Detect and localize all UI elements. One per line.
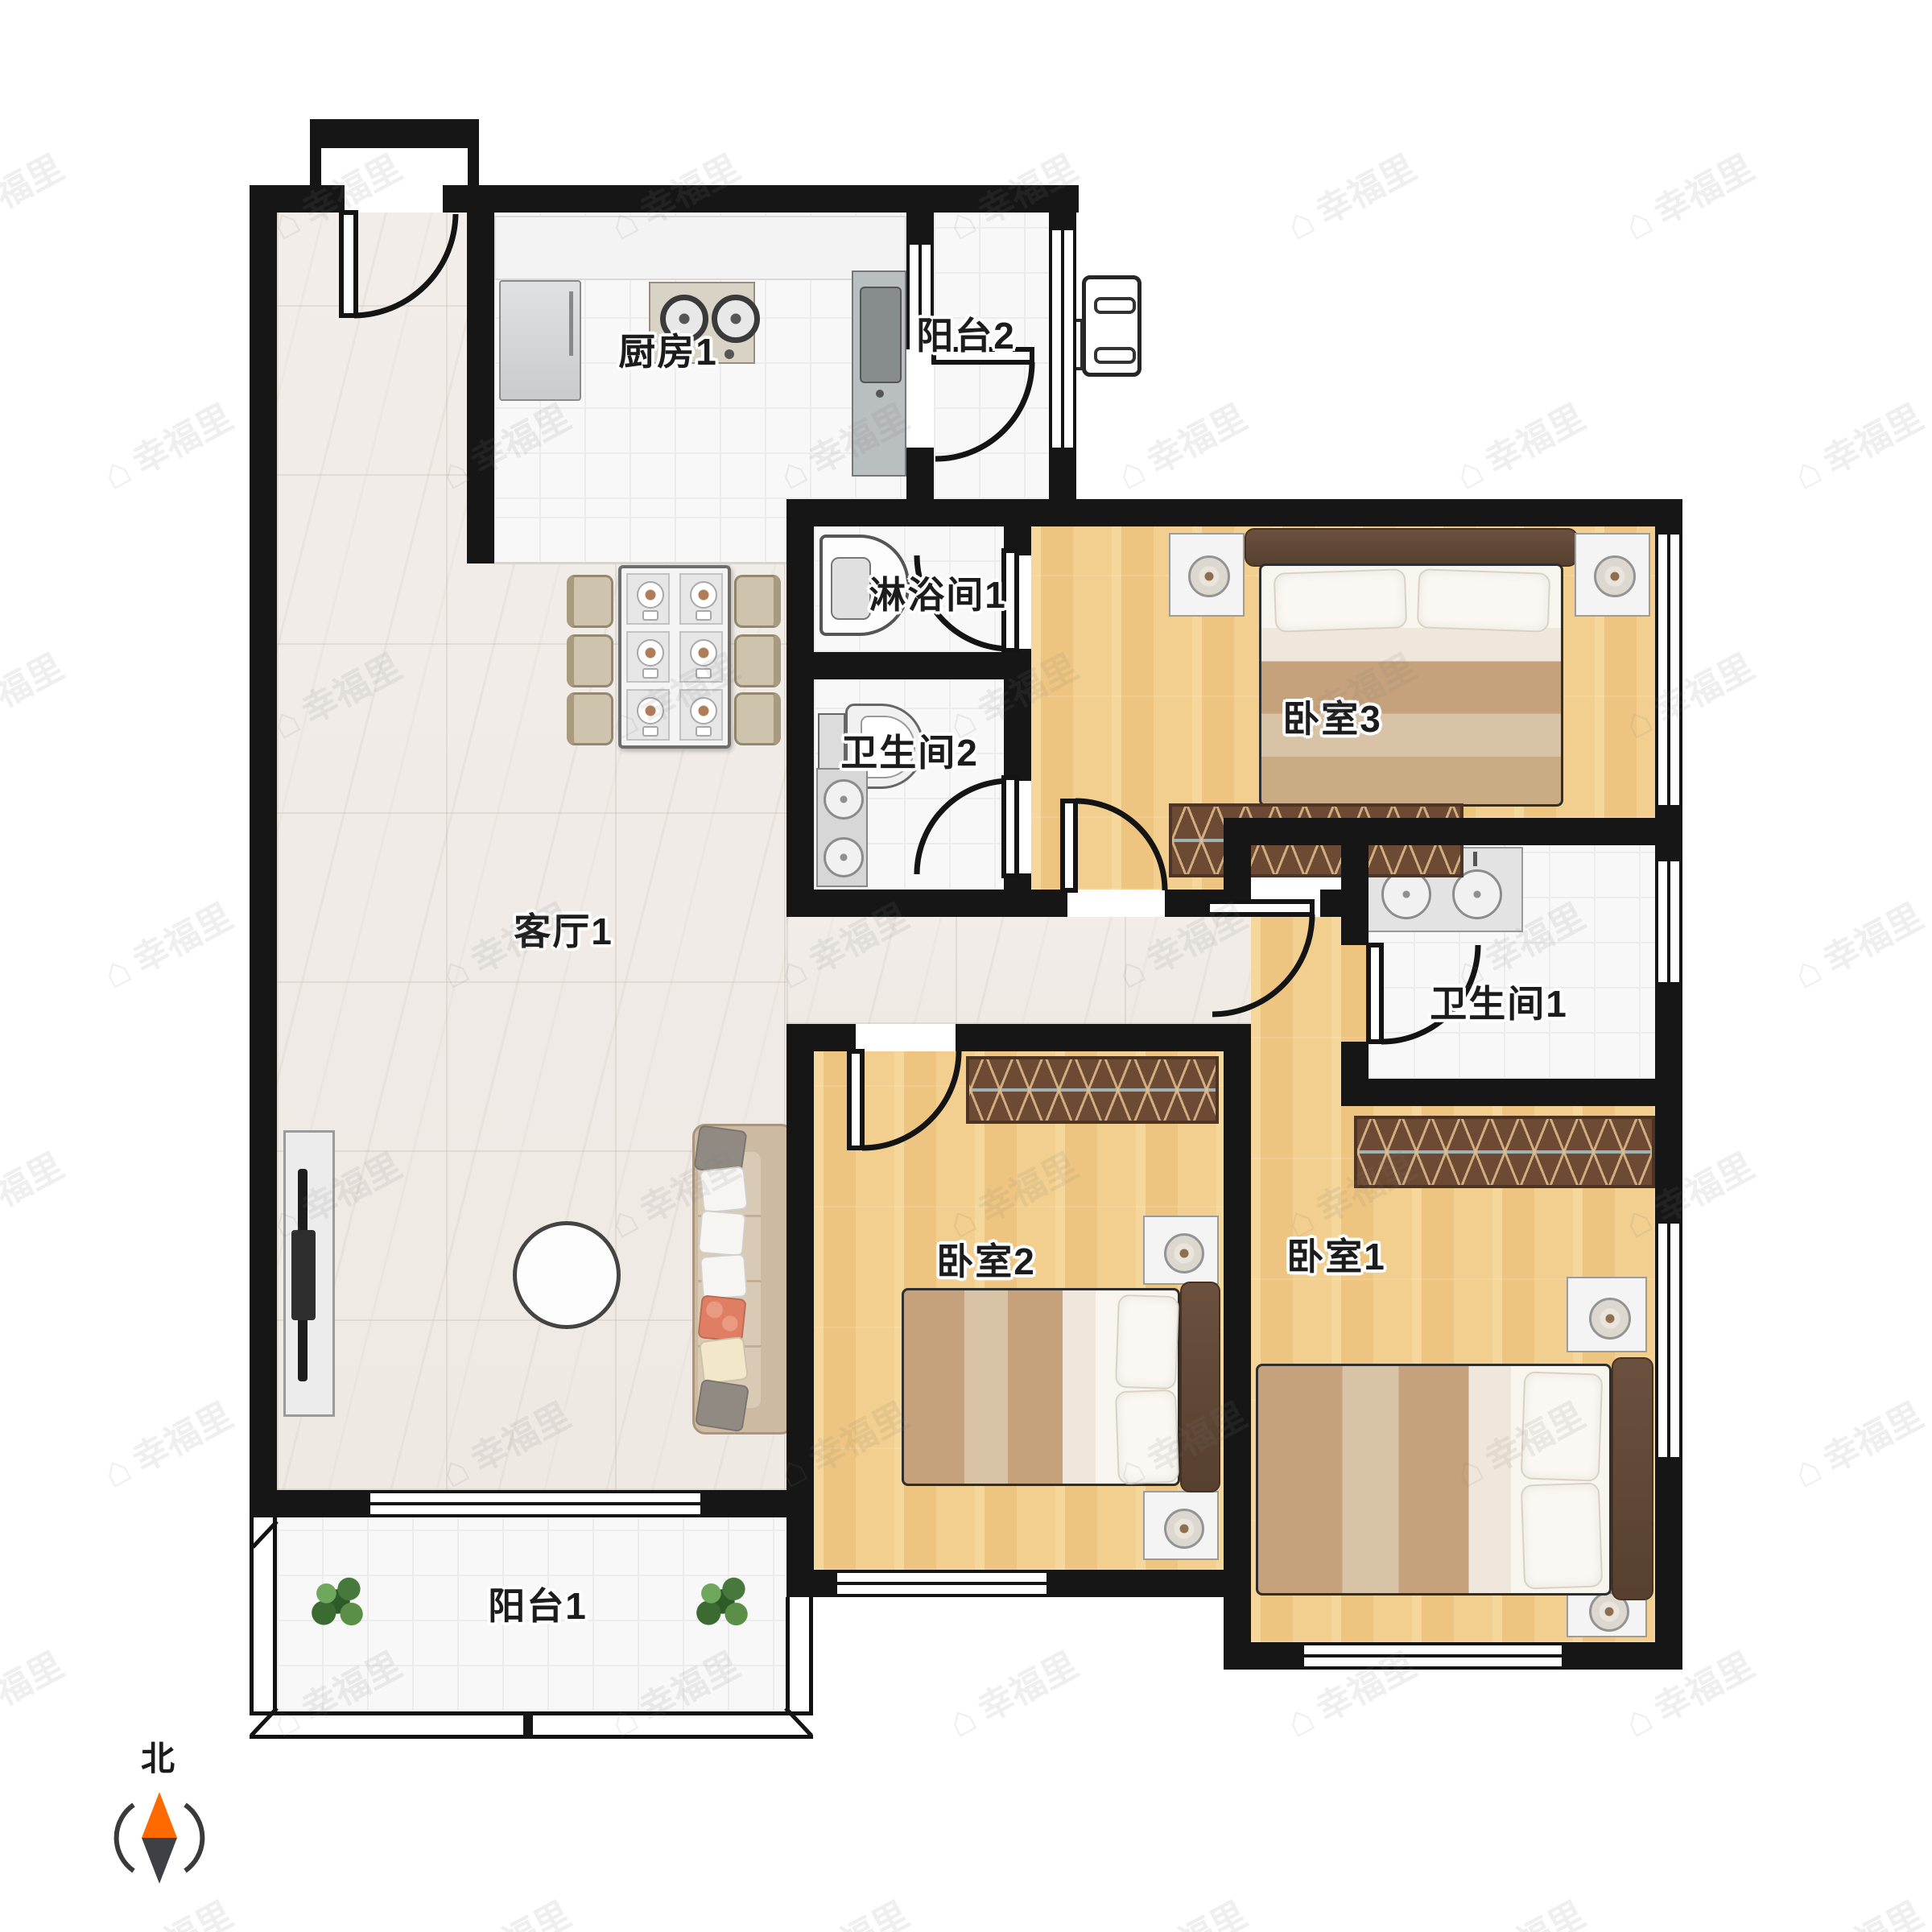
compass-needle-south	[142, 1838, 177, 1884]
door-leaf	[1207, 902, 1312, 914]
room-label-shower1: 淋浴间1	[817, 576, 1059, 613]
door-leaf	[1004, 778, 1017, 876]
room-label-balcony2: 阳台2	[861, 317, 1071, 354]
door-arc-entrance	[354, 214, 456, 316]
room-label-bath2: 卫生间2	[789, 734, 1030, 771]
door-arc-bedroom2	[862, 1051, 959, 1148]
room-label-balcony1: 阳台1	[433, 1587, 642, 1624]
door-arc-bedroom1-entry	[1212, 914, 1312, 1014]
room-label-bedroom3: 卧室3	[1228, 700, 1437, 737]
floor-plan: 厨房1 阳台2 淋浴间1 卫生间2 卧室3 客厅1 卫生间1 卧室2 卧室1 阳…	[0, 0, 1932, 1932]
room-label-bedroom2: 卧室2	[881, 1243, 1091, 1280]
door-and-compass-overlay	[0, 0, 1932, 1932]
door-arc-bedroom3	[1075, 801, 1165, 890]
door-leaf	[849, 1051, 862, 1148]
door-leaf	[1063, 801, 1075, 890]
compass-north-label: 北	[126, 1742, 191, 1776]
room-label-living: 客厅1	[459, 913, 668, 950]
room-label-bedroom1: 卧室1	[1232, 1238, 1441, 1275]
balcony-rail-tick	[251, 1708, 277, 1736]
door-leaf	[341, 213, 356, 316]
balcony-rail-tick	[253, 1521, 277, 1547]
room-label-kitchen: 厨房1	[563, 333, 773, 370]
door-arc-balcony2	[935, 362, 1032, 459]
compass-needle-north	[142, 1792, 177, 1838]
balcony-rail-tick	[786, 1708, 811, 1736]
compass-icon	[117, 1792, 203, 1884]
door-arc-bath2	[917, 781, 1010, 874]
room-label-bath1: 卫生间1	[1378, 985, 1620, 1022]
